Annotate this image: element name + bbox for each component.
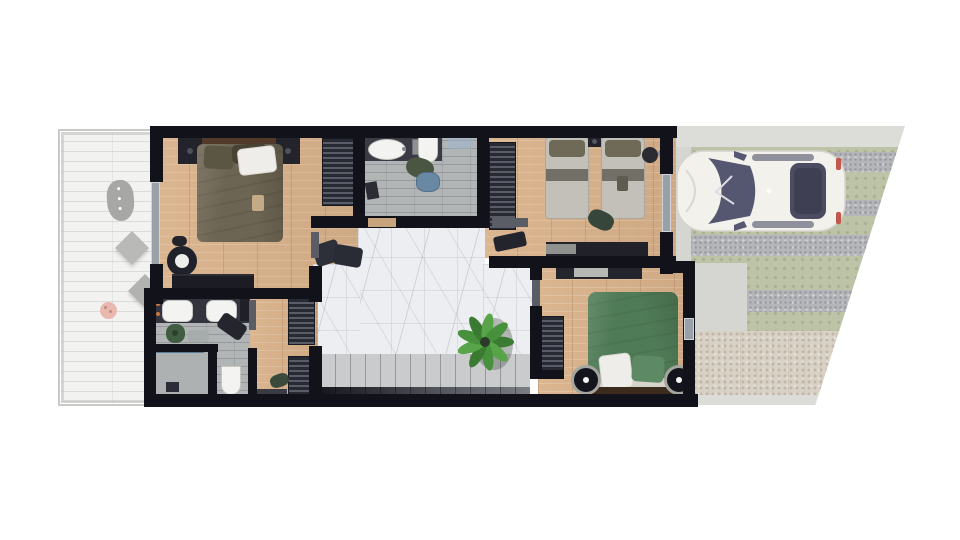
- shoe-rack-top: [288, 298, 315, 345]
- gravel-strip: [688, 235, 905, 256]
- wall-left-upper: [150, 126, 163, 182]
- door-kids: [492, 218, 528, 227]
- wall-master-hall-stub: [311, 216, 355, 228]
- master-dresser: [172, 274, 254, 289]
- pillow-white: [598, 352, 634, 391]
- door-bed3: [532, 280, 540, 306]
- chair-button: [118, 207, 121, 210]
- book: [617, 176, 628, 191]
- wall-knob: [156, 312, 160, 316]
- kids-dresser-shelf: [546, 244, 576, 254]
- wall-bed3-left-b: [530, 306, 542, 374]
- twin-bed-right: [602, 138, 644, 218]
- master-bed: [196, 137, 286, 243]
- green-bed: [588, 292, 678, 395]
- chair-button: [117, 187, 120, 190]
- wall-right-upper: [660, 126, 673, 174]
- wall-top: [150, 126, 677, 138]
- site-edge-strip-top: [672, 126, 905, 147]
- master-wardrobe: [322, 138, 356, 206]
- sink-left: [162, 300, 193, 322]
- wall-bed3-left-a: [530, 268, 542, 280]
- door-bath2: [249, 300, 256, 330]
- wall-bath1-bottom-b: [396, 216, 489, 228]
- stone-patio: [692, 331, 905, 395]
- site-edge-strip-bottom: [672, 395, 905, 405]
- faucet: [402, 147, 406, 151]
- bedside-table-left: [574, 368, 598, 392]
- twin-pillow: [549, 140, 585, 157]
- wall-corridor-top: [144, 288, 317, 299]
- deck-round-stool: [100, 302, 117, 319]
- bath-mat: [188, 330, 209, 342]
- pillow-white: [236, 145, 277, 176]
- wall-bottom: [144, 394, 698, 407]
- floor-plant: [166, 324, 185, 343]
- kids-side-table: [642, 147, 658, 163]
- twin-band: [546, 169, 588, 181]
- round-chair: [167, 246, 197, 276]
- wall-master-bath: [353, 126, 365, 226]
- wall-kids-bottom: [489, 256, 676, 268]
- laundry-basket: [416, 172, 440, 192]
- pillow-olive: [203, 145, 234, 170]
- wall-bath2-corridor: [248, 348, 257, 394]
- wall-hall-west-b: [309, 346, 322, 394]
- twin-pillow: [605, 140, 641, 157]
- twin-bed-left: [546, 138, 588, 218]
- bin: [166, 382, 179, 392]
- blanket-tag: [252, 195, 264, 211]
- floor-plan-scene: [0, 0, 960, 540]
- potted-plant: [458, 304, 518, 382]
- door-bath1: [368, 218, 398, 227]
- pillow-green: [631, 355, 665, 383]
- wall-bath1-right: [477, 126, 489, 226]
- window-bed3: [684, 318, 694, 340]
- window-deck-door: [151, 182, 160, 266]
- shower-floor: [154, 352, 210, 396]
- driveway-garden: [672, 126, 905, 405]
- chair-button: [118, 197, 121, 200]
- wall-closet-bottom: [530, 370, 564, 379]
- kids-wardrobe: [489, 142, 516, 230]
- wall-wc-divider: [208, 350, 217, 396]
- window-right: [662, 174, 671, 232]
- toilet-bottom: [221, 366, 241, 395]
- white-car: [676, 148, 848, 234]
- door-master: [311, 232, 319, 258]
- stool-cylinder: [172, 236, 187, 246]
- green-bedroom-wardrobe: [540, 316, 564, 372]
- washbasin-oval: [368, 139, 406, 160]
